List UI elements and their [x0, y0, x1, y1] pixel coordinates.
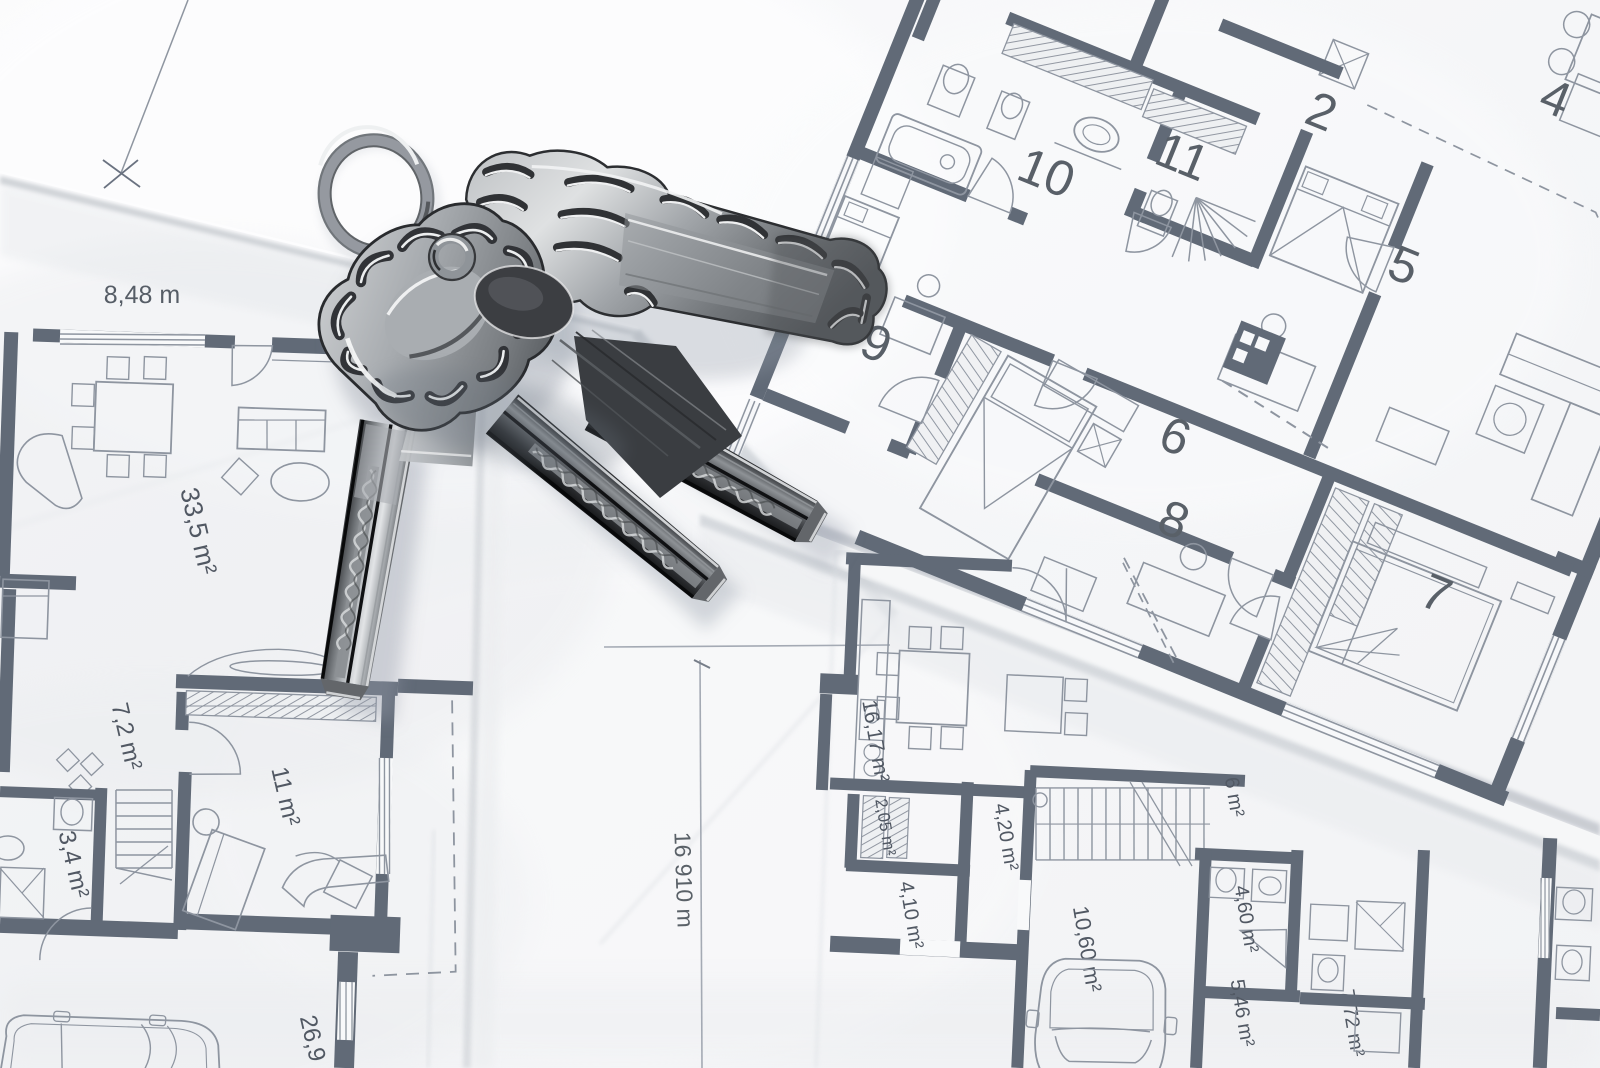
svg-text:16 910 m: 16 910 m [669, 831, 698, 928]
svg-text:8,48 m: 8,48 m [104, 281, 180, 309]
